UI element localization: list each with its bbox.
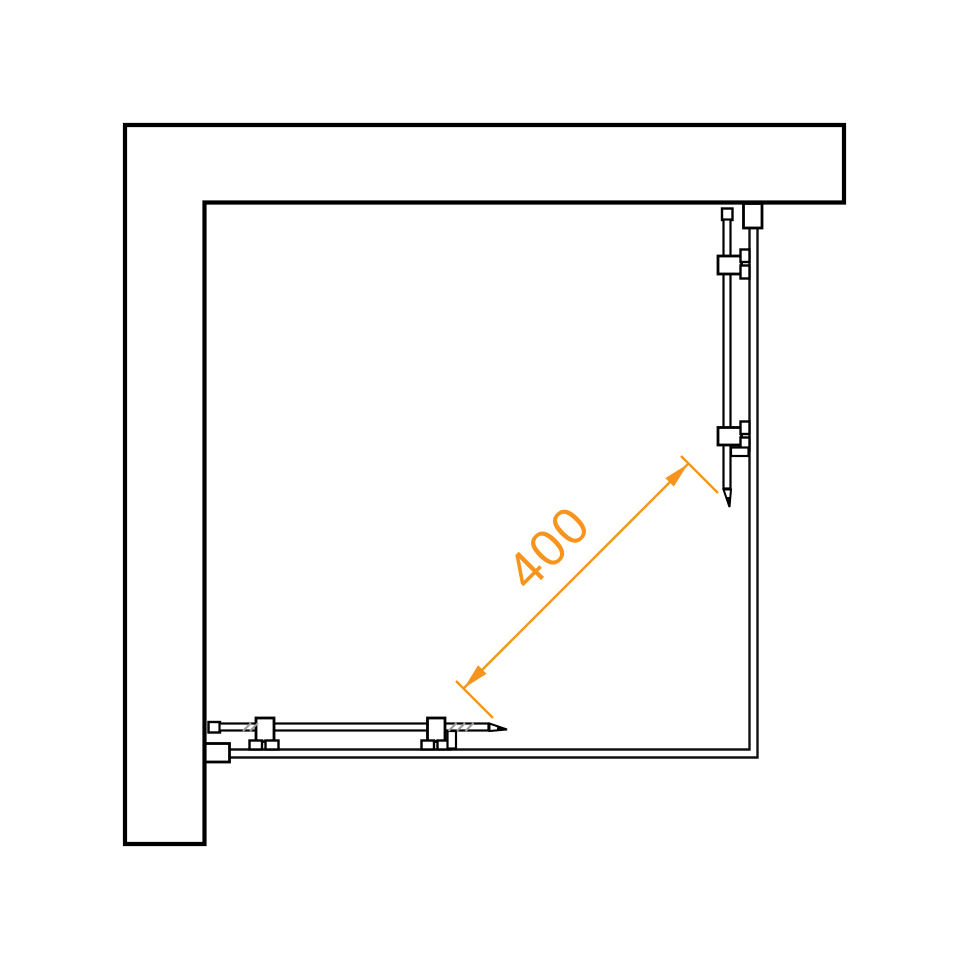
roller-bracket bbox=[256, 718, 274, 742]
roller-bracket bbox=[428, 718, 446, 742]
door-end-cap bbox=[209, 722, 221, 733]
walls bbox=[125, 125, 844, 844]
shower-enclosure-plan-drawing: 400 bbox=[0, 0, 970, 970]
roller-tab bbox=[266, 741, 279, 750]
technical-drawing-page: 400 bbox=[0, 0, 970, 970]
roller-tab bbox=[250, 741, 263, 750]
guide-channel bbox=[448, 731, 457, 749]
dimension-annotation: 400 bbox=[456, 456, 718, 718]
dimension-label: 400 bbox=[496, 495, 603, 602]
dimension-line bbox=[464, 464, 688, 688]
roller-tab bbox=[741, 250, 750, 263]
wall-l-shape bbox=[125, 125, 844, 844]
roller-tab bbox=[741, 266, 750, 279]
wall-profile-top bbox=[744, 204, 763, 229]
roller-bracket bbox=[718, 256, 742, 274]
door-panel-bottom bbox=[209, 718, 508, 750]
fixed-glass-panels bbox=[228, 226, 758, 758]
dimension-extension-line bbox=[681, 456, 718, 493]
dimension-extension-line bbox=[456, 681, 493, 718]
guide-channel bbox=[731, 448, 749, 457]
wall-profiles bbox=[205, 204, 762, 763]
door-end-cap bbox=[722, 209, 733, 221]
door-panel-right bbox=[718, 209, 750, 508]
roller-tab bbox=[741, 422, 750, 435]
roller-tab bbox=[422, 741, 435, 750]
roller-bracket bbox=[718, 428, 742, 446]
glass-outer-edge bbox=[228, 226, 758, 758]
glass-inner-edge bbox=[228, 226, 750, 750]
wall-profile-left bbox=[205, 744, 230, 763]
